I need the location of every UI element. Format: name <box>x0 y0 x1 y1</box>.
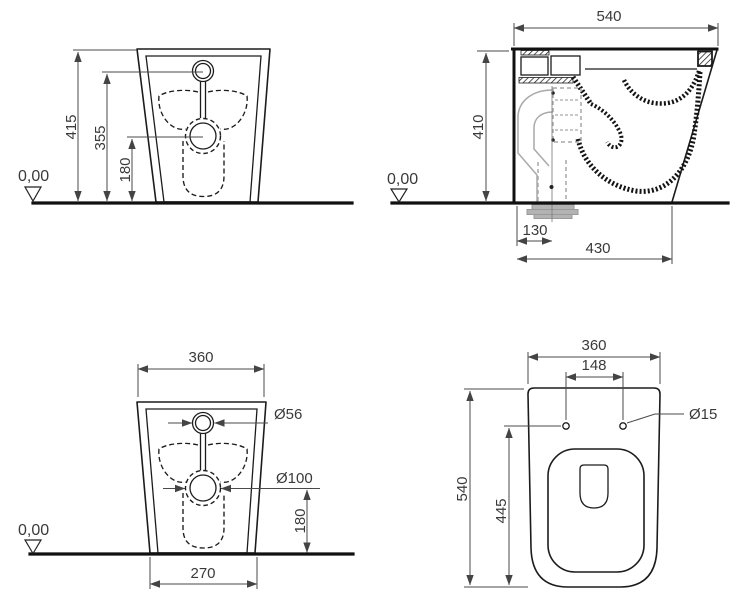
floor-flange-3 <box>534 215 572 219</box>
dim-label-270: 270 <box>190 565 215 582</box>
side-section-view: 0,00 540 410 130 430 <box>387 8 728 264</box>
dim-label-148: 148 <box>581 357 606 374</box>
seat-hole-left <box>563 423 569 429</box>
dim-label-540: 540 <box>596 8 621 25</box>
trap-elbow-outer <box>518 90 553 203</box>
dim-label-540: 540 <box>454 476 471 501</box>
datum-triangle-icon <box>25 187 41 201</box>
rim-hatch-strip-bottom <box>519 78 573 84</box>
technical-drawing-page: 0,00 415 355 180 <box>0 0 755 598</box>
datum-label: 0,00 <box>18 522 49 539</box>
trap-elbow-inner <box>534 112 553 166</box>
bowl-rear-section <box>624 71 699 104</box>
dim-label-430: 430 <box>585 240 610 257</box>
dim-label-445: 445 <box>493 498 510 523</box>
rim-hatch-strip-top <box>521 51 549 56</box>
rim-section-front <box>698 52 712 67</box>
leader-d15 <box>627 414 684 423</box>
datum-triangle-icon <box>25 540 41 554</box>
dim-label-130: 130 <box>522 222 547 239</box>
dim-label-d100: Ø100 <box>276 470 313 487</box>
dim-label-180: 180 <box>117 157 134 182</box>
wc-dimension-drawing: 0,00 415 355 180 <box>0 0 755 598</box>
dim-label-415: 415 <box>63 114 80 139</box>
seat-opening-outline <box>548 449 644 572</box>
dim-label-355: 355 <box>92 125 109 150</box>
datum-label: 0,00 <box>387 171 418 188</box>
pipe-center-dot <box>550 185 554 189</box>
flush-duct-section-a <box>521 57 548 75</box>
bowl-inlet-hook <box>591 104 622 147</box>
dim-label-360: 360 <box>188 349 213 366</box>
datum-label: 0,00 <box>18 168 49 185</box>
dim-label-410: 410 <box>470 114 487 139</box>
floor-flange-1 <box>532 205 574 210</box>
floor-flange-2 <box>527 210 578 215</box>
plan-view: 360 148 Ø15 540 445 <box>454 337 717 587</box>
bowl-front-section <box>578 72 700 191</box>
dim-label-360: 360 <box>581 337 606 354</box>
flush-duct-section-b <box>551 56 580 75</box>
front-elevation-upper-view: 0,00 415 355 180 <box>18 49 352 203</box>
dim-label-d56: Ø56 <box>274 406 302 423</box>
datum-triangle-icon <box>391 189 407 202</box>
sump-outline <box>580 465 608 508</box>
dim-label-180: 180 <box>292 508 309 533</box>
dim-label-d15: Ø15 <box>689 406 717 423</box>
seat-hole-right <box>620 423 626 429</box>
front-elevation-lower-view: 0,00 360 Ø56 Ø100 180 270 <box>18 349 353 589</box>
